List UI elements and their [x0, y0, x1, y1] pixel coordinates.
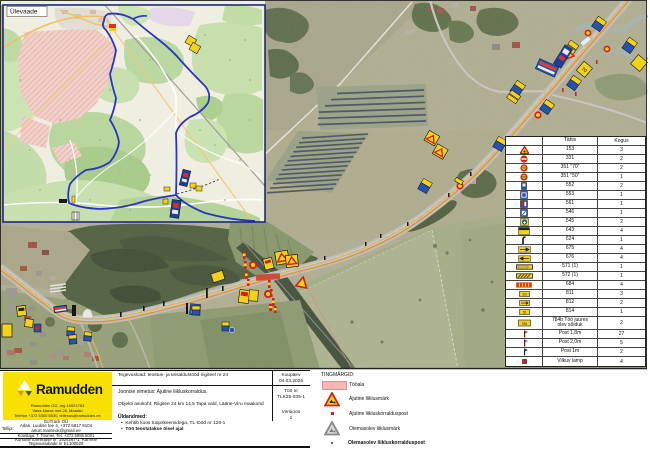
- svg-text:1m: 1m: [522, 292, 527, 296]
- svg-text:50: 50: [522, 176, 526, 180]
- svg-text:784: 784: [521, 322, 527, 326]
- svg-text:70: 70: [522, 167, 526, 171]
- svg-text:Ülevaade: Ülevaade: [10, 8, 38, 16]
- svg-text:Ramudden: Ramudden: [36, 382, 103, 397]
- svg-text:5t: 5t: [523, 310, 526, 314]
